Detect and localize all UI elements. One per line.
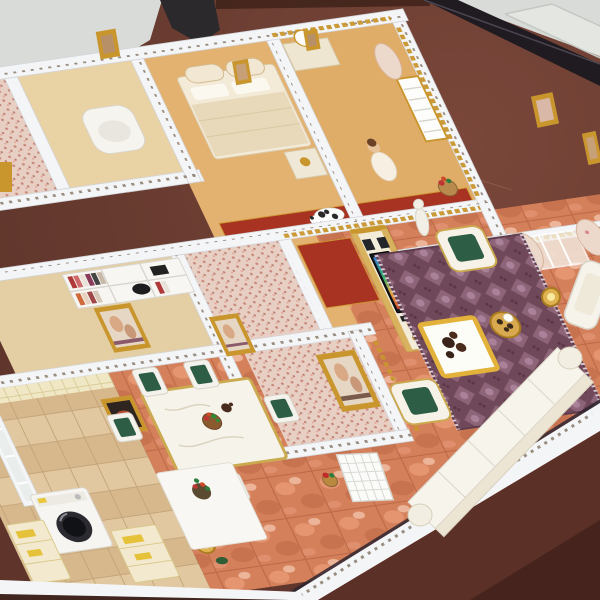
sofa-armrest: [408, 504, 432, 526]
sofa-armrest: [558, 347, 582, 369]
living-floor-lamp: [542, 288, 560, 306]
screenshot-root: [0, 0, 600, 600]
dollhouse-photo: [0, 0, 600, 600]
frame-partial-left: [0, 162, 12, 192]
